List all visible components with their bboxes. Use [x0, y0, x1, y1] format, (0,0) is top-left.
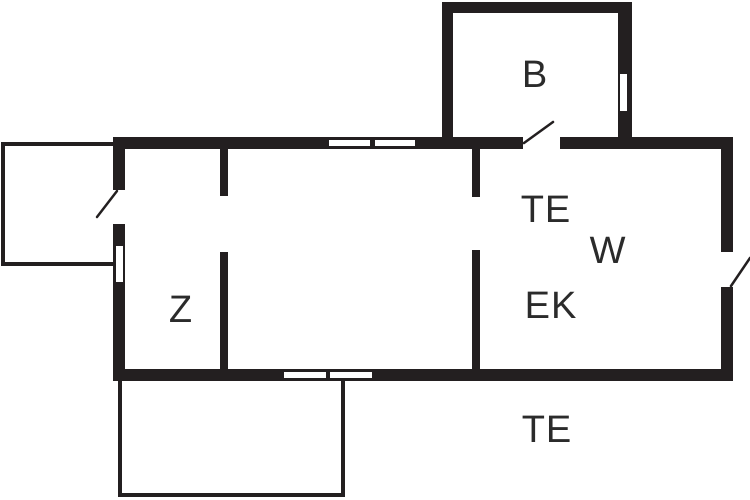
b-room-wall-top — [442, 2, 632, 13]
room-label-te-terrace: TE — [522, 409, 573, 451]
b-room-wall-right — [618, 2, 632, 137]
top-window-2 — [374, 139, 416, 147]
partition-z-upper — [220, 149, 228, 196]
bottom-window-1 — [283, 371, 327, 379]
room-label-te-upper: TE — [521, 189, 572, 231]
left-porch-outline — [3, 144, 113, 264]
top-window-1 — [328, 139, 371, 147]
partition-ek-lower — [472, 250, 480, 369]
floor-plan-canvas: B TE W EK Z TE — [0, 0, 750, 500]
b-room-door-opening — [523, 136, 560, 150]
bottom-window-2 — [329, 371, 373, 379]
left-window — [115, 245, 124, 283]
room-label-w: W — [590, 230, 627, 272]
main-wall-bottom — [113, 369, 733, 381]
partition-ek-upper — [472, 149, 480, 197]
room-label-b: B — [522, 54, 548, 96]
room-label-ek: EK — [525, 285, 578, 327]
bottom-terrace-outline — [120, 380, 343, 495]
b-room-wall-left — [442, 2, 453, 137]
main-wall-top — [113, 137, 733, 149]
partition-z-lower — [220, 252, 228, 369]
b-room-window — [619, 73, 628, 112]
floor-plan: B TE W EK Z TE — [0, 0, 750, 500]
room-label-z: Z — [169, 289, 193, 331]
right-door-opening — [720, 252, 734, 287]
